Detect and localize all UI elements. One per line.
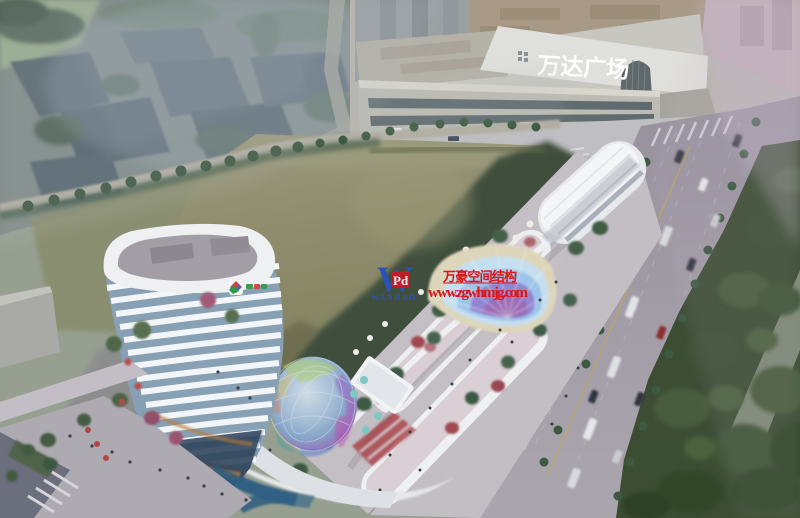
svg-text:www.zgwhmjg.com: www.zgwhmjg.com: [428, 285, 529, 301]
svg-text:万豪空间结构: 万豪空间结构: [442, 269, 517, 284]
svg-text:Pd: Pd: [393, 273, 409, 288]
svg-text:WANHAO: WANHAO: [371, 293, 417, 302]
